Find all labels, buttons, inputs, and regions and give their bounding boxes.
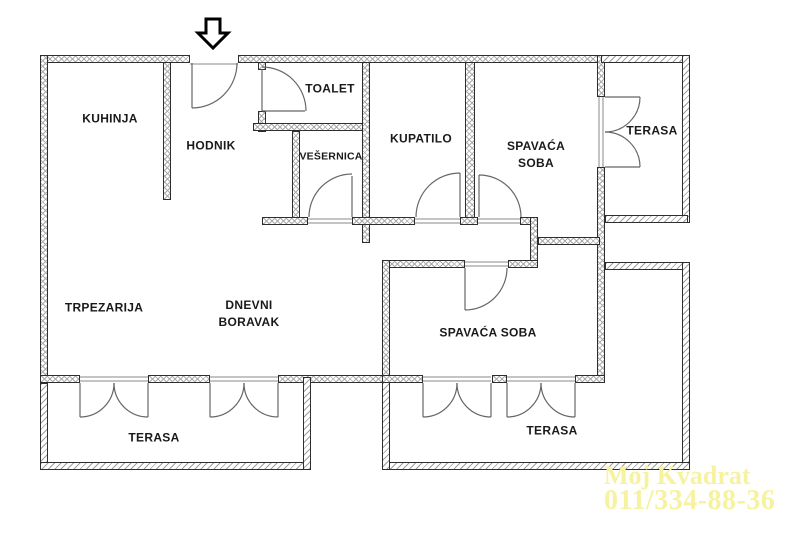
room-label-dnevni-boravak: DNEVNI BORAVAK bbox=[219, 297, 280, 331]
room-label-terasa-3: TERASA bbox=[526, 423, 577, 440]
french-door-bedroom-2 bbox=[507, 383, 575, 417]
room-label-terasa-1: TERASA bbox=[626, 123, 677, 140]
door-entrance bbox=[192, 63, 237, 108]
door-vesernica bbox=[309, 174, 352, 217]
room-label-kuhinja: KUHINJA bbox=[82, 111, 137, 128]
room-label-hodnik: HODNIK bbox=[186, 138, 235, 155]
watermark: Moj Kvadrat 011/334-88-36 bbox=[604, 463, 775, 513]
french-door-living-1 bbox=[80, 383, 148, 417]
french-door-bedroom-1 bbox=[423, 383, 491, 417]
room-label-line: SPAVAĆA bbox=[507, 138, 565, 155]
room-label-spavaca-soba-1: SPAVAĆA SOBA bbox=[507, 138, 565, 172]
room-label-vesernica: VEŠERNICA bbox=[299, 149, 362, 166]
door-kupatilo bbox=[416, 173, 460, 217]
door-bedroom-upper bbox=[479, 175, 521, 217]
room-label-toalet: TOALET bbox=[305, 81, 355, 98]
door-toalet bbox=[262, 67, 306, 111]
room-label-spavaca-soba-2: SPAVAĆA SOBA bbox=[439, 325, 536, 342]
room-label-line: DNEVNI bbox=[219, 297, 280, 314]
room-label-kupatilo: KUPATILO bbox=[390, 131, 452, 148]
floor-plan: KUHINJA HODNIK TOALET VEŠERNICA KUPATILO… bbox=[0, 0, 800, 538]
doors-layer bbox=[0, 0, 800, 538]
room-label-terasa-2: TERASA bbox=[128, 430, 179, 447]
watermark-phone: 011/334-88-36 bbox=[604, 488, 775, 513]
room-label-line: BORAVAK bbox=[219, 314, 280, 331]
french-door-living-2 bbox=[210, 383, 278, 417]
room-label-line: SOBA bbox=[507, 155, 565, 172]
door-bedroom-lower bbox=[465, 268, 507, 310]
room-label-trpezarija: TRPEZARIJA bbox=[65, 300, 143, 317]
